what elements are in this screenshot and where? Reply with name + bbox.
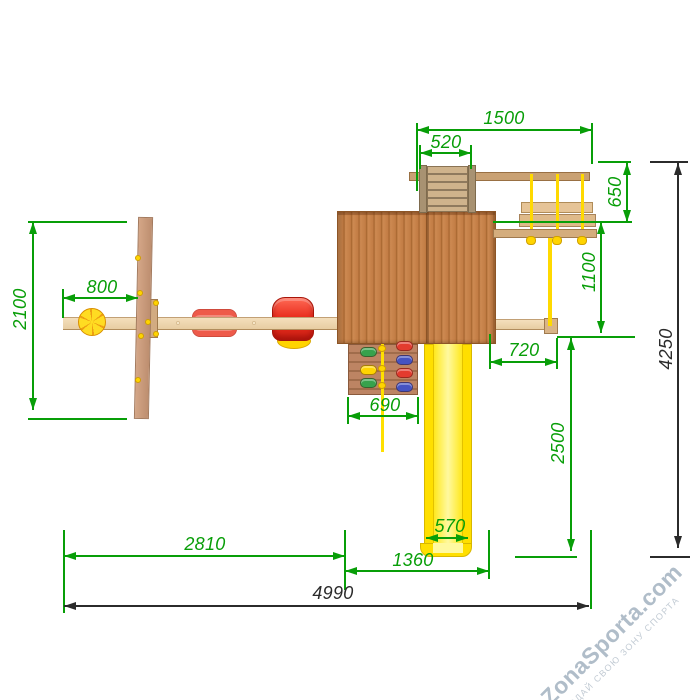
extension-line <box>591 123 593 164</box>
arrowhead <box>597 321 605 333</box>
dim-line <box>417 129 592 131</box>
extension-line <box>515 556 577 558</box>
extension-line <box>650 161 688 163</box>
beam-bolt <box>252 321 256 325</box>
extension-line <box>493 221 632 223</box>
climb-hold-blue <box>396 355 413 365</box>
dim-label: 2810 <box>173 534 237 554</box>
extension-line <box>590 530 592 609</box>
watermark-logo: ZonaSporta.com <box>535 559 687 700</box>
climb-hold-red <box>396 368 413 378</box>
platform-deck <box>337 211 496 344</box>
swing-rope <box>530 174 533 236</box>
dim-label: 520 <box>414 132 478 152</box>
arrowhead <box>64 602 76 610</box>
climbing-board <box>134 217 153 419</box>
dim-label: 2100 <box>10 277 30 341</box>
dim-label: 4990 <box>301 583 365 603</box>
dim-label: 720 <box>492 340 556 360</box>
dim-label: 800 <box>70 277 134 297</box>
dim-label: 2500 <box>548 411 568 475</box>
arrowhead <box>674 163 682 175</box>
extension-line <box>488 530 490 579</box>
dim-line <box>677 163 679 548</box>
arrowhead <box>567 539 575 551</box>
board-hold <box>135 377 141 383</box>
ball <box>78 308 106 336</box>
board-hold <box>138 333 144 339</box>
extension-line <box>417 397 419 424</box>
climb-hold-red <box>396 341 413 351</box>
climb-hold-yellow <box>360 365 377 375</box>
board-hold <box>135 255 141 261</box>
arrowhead <box>577 602 589 610</box>
climb-rope-knot <box>378 382 386 389</box>
dim-label: 690 <box>353 395 417 415</box>
arrowhead <box>29 222 37 234</box>
dim-line <box>64 605 589 607</box>
arrowhead <box>567 338 575 350</box>
climb-hold-green <box>360 347 377 357</box>
extension-line <box>650 556 690 558</box>
extension-line <box>489 334 491 369</box>
ladder-rail <box>419 165 427 213</box>
ladder-rungs <box>427 166 468 212</box>
arrowhead <box>345 567 357 575</box>
dim-label: 650 <box>605 160 625 224</box>
block-bolt <box>153 300 159 306</box>
arrowhead <box>674 536 682 548</box>
extension-line <box>344 530 346 590</box>
climb-rope-knot <box>378 365 386 372</box>
dim-line <box>64 555 345 557</box>
swing-rope <box>581 174 584 236</box>
arrowhead <box>64 552 76 560</box>
dim-label: 1100 <box>579 240 599 304</box>
dim-label: 4250 <box>656 317 676 381</box>
block-bolt <box>153 331 159 337</box>
playground-top-view-drawing: 1500 520 650 1100 2100 <box>0 0 700 700</box>
dim-line <box>600 222 602 333</box>
dim-label: 1360 <box>381 550 445 570</box>
extension-line <box>556 338 558 369</box>
beam-bolt <box>176 321 180 325</box>
slide-chute <box>433 344 463 544</box>
arrowhead <box>597 222 605 234</box>
extension-line <box>347 397 349 424</box>
extension-line <box>63 530 65 613</box>
climb-hold-blue <box>396 382 413 392</box>
extension-line <box>62 289 64 318</box>
swing-rope-center <box>548 238 552 326</box>
dim-line <box>32 222 34 410</box>
climb-hold-green <box>360 378 377 388</box>
climb-rope-knot <box>378 345 386 352</box>
extension-line <box>28 418 127 420</box>
ladder-rail <box>468 165 476 213</box>
swing-rope <box>556 174 559 236</box>
rope-knob <box>552 236 562 245</box>
board-hold <box>145 319 151 325</box>
platform-ridge <box>426 212 429 343</box>
dim-label: 570 <box>418 516 482 536</box>
rope-knob <box>526 236 536 245</box>
extension-line <box>28 221 127 223</box>
dim-line <box>570 338 572 551</box>
arrowhead <box>333 552 345 560</box>
dim-line <box>345 570 489 572</box>
dim-label: 1500 <box>472 108 536 128</box>
arrowhead <box>29 398 37 410</box>
